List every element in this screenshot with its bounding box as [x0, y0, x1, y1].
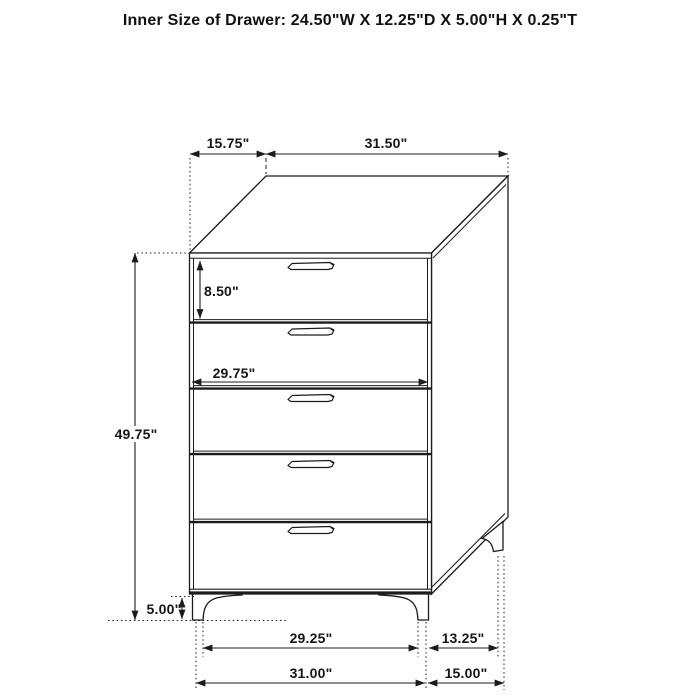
dim-label-drawer-front-width: 29.75" — [213, 366, 256, 380]
dim-label-leg-height: 5.00" — [147, 602, 182, 616]
front-left-leg — [193, 594, 243, 620]
dim-label-top-width: 31.50" — [365, 136, 408, 150]
dim-label-side-leg-span: 13.25" — [442, 631, 485, 645]
dim-label-base-side-depth: 15.00" — [445, 666, 488, 680]
dresser-front-face — [190, 253, 432, 594]
drawer-handle-icon — [288, 461, 334, 468]
dim-label-base-front-width: 31.00" — [290, 666, 333, 680]
drawer-handle-icon — [288, 395, 334, 402]
dresser-line-drawing — [0, 0, 700, 700]
drawer-handle-icon — [288, 328, 334, 335]
dim-label-overall-height: 49.75" — [112, 426, 161, 442]
drawer-handle-icon — [288, 527, 334, 534]
dim-label-top-depth: 15.75" — [207, 136, 250, 150]
drawer-handle-icon — [288, 263, 334, 270]
front-right-leg — [379, 594, 429, 620]
product-dimension-diagram: Inner Size of Drawer: 24.50"W X 12.25"D … — [0, 0, 700, 700]
dim-label-front-leg-span: 29.25" — [290, 631, 333, 645]
dim-label-top-drawer-height: 8.50" — [204, 284, 239, 298]
